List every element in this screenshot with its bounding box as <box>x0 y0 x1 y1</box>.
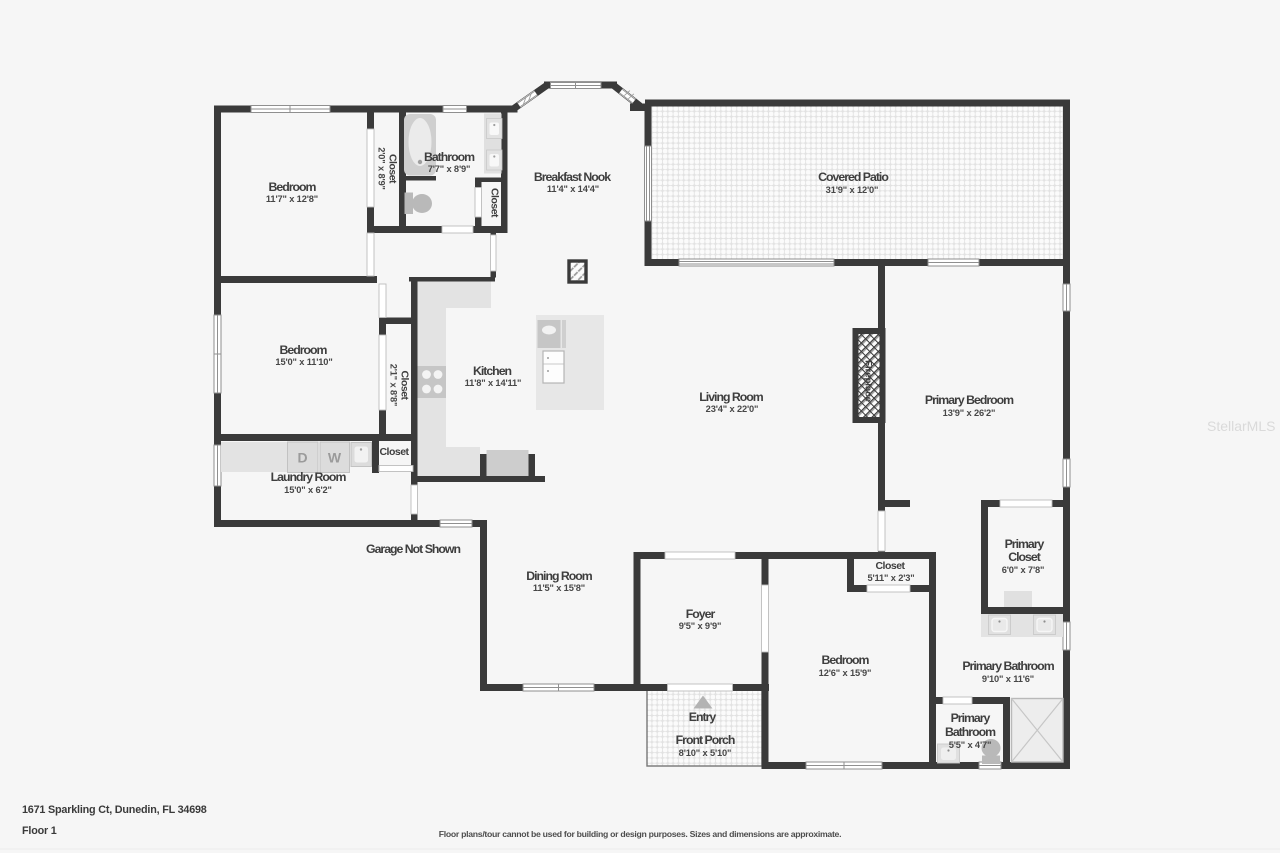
svg-text:5'11" x 2'3": 5'11" x 2'3" <box>867 573 914 583</box>
svg-text:Dining Room: Dining Room <box>526 569 593 583</box>
svg-text:Front Porch: Front Porch <box>676 733 735 747</box>
svg-text:Floor plans/tour cannot be use: Floor plans/tour cannot be used for buil… <box>439 829 841 839</box>
svg-text:11'7" x 12'8": 11'7" x 12'8" <box>266 194 318 204</box>
svg-text:Garage Not Shown: Garage Not Shown <box>366 542 460 556</box>
svg-text:9'10" x 11'6": 9'10" x 11'6" <box>982 674 1034 684</box>
svg-text:Living Room: Living Room <box>699 390 764 404</box>
svg-text:Laundry Room: Laundry Room <box>271 470 347 484</box>
svg-text:StellarMLS: StellarMLS <box>1207 418 1275 434</box>
svg-text:15'0" x 6'2": 15'0" x 6'2" <box>284 485 332 495</box>
svg-text:Closet: Closet <box>379 446 409 458</box>
svg-text:11'8" x 14'11": 11'8" x 14'11" <box>465 378 522 388</box>
svg-text:7'7" x 8'9": 7'7" x 8'9" <box>428 164 471 174</box>
svg-text:Closet: Closet <box>489 188 501 218</box>
svg-text:Primary Bedroom: Primary Bedroom <box>925 393 1014 407</box>
svg-text:2'0" x 8'9": 2'0" x 8'9" <box>377 147 387 190</box>
svg-text:2'1" x 8'8": 2'1" x 8'8" <box>389 364 399 407</box>
svg-text:1671 Sparkling Ct, Dunedin, FL: 1671 Sparkling Ct, Dunedin, FL 34698 <box>22 804 207 816</box>
svg-text:Foyer: Foyer <box>686 607 716 621</box>
svg-text:Closet: Closet <box>1008 550 1040 564</box>
svg-text:Floor 1: Floor 1 <box>22 825 57 837</box>
svg-text:Primary Bathroom: Primary Bathroom <box>962 659 1054 673</box>
svg-text:9'5" x 9'9": 9'5" x 9'9" <box>679 621 722 631</box>
svg-text:W: W <box>328 450 342 466</box>
svg-text:11'5" x 15'8": 11'5" x 15'8" <box>533 583 585 593</box>
svg-text:Closet: Closet <box>387 154 399 184</box>
svg-text:Closet: Closet <box>875 560 905 572</box>
svg-text:5'5" x 4'7": 5'5" x 4'7" <box>949 740 992 750</box>
svg-text:Kitchen: Kitchen <box>473 364 512 378</box>
svg-text:Bathroom: Bathroom <box>945 725 996 739</box>
svg-text:D: D <box>297 450 307 466</box>
svg-text:Bedroom: Bedroom <box>269 180 317 194</box>
svg-text:Covered Patio: Covered Patio <box>818 170 889 184</box>
svg-text:31'9" x 12'0": 31'9" x 12'0" <box>826 185 879 195</box>
svg-text:13'9" x 26'2": 13'9" x 26'2" <box>943 408 996 418</box>
svg-text:Closet: Closet <box>399 370 411 400</box>
svg-text:Breakfast Nook: Breakfast Nook <box>534 170 611 184</box>
svg-text:Primary: Primary <box>951 711 991 725</box>
svg-text:15'0" x 11'10": 15'0" x 11'10" <box>275 357 332 367</box>
svg-text:12'6" x 15'9": 12'6" x 15'9" <box>819 668 872 678</box>
svg-text:Fireplace: Fireplace <box>863 360 874 402</box>
svg-text:Entry: Entry <box>689 710 717 724</box>
svg-text:8'10" x 5'10": 8'10" x 5'10" <box>679 748 732 758</box>
svg-text:Bathroom: Bathroom <box>424 150 475 164</box>
svg-text:Bedroom: Bedroom <box>280 343 328 357</box>
svg-text:11'4" x 14'4": 11'4" x 14'4" <box>547 184 599 194</box>
svg-text:Bedroom: Bedroom <box>822 653 870 667</box>
svg-text:23'4" x 22'0": 23'4" x 22'0" <box>706 404 759 414</box>
svg-text:6'0" x 7'8": 6'0" x 7'8" <box>1002 565 1045 575</box>
svg-text:Primary: Primary <box>1005 537 1045 551</box>
